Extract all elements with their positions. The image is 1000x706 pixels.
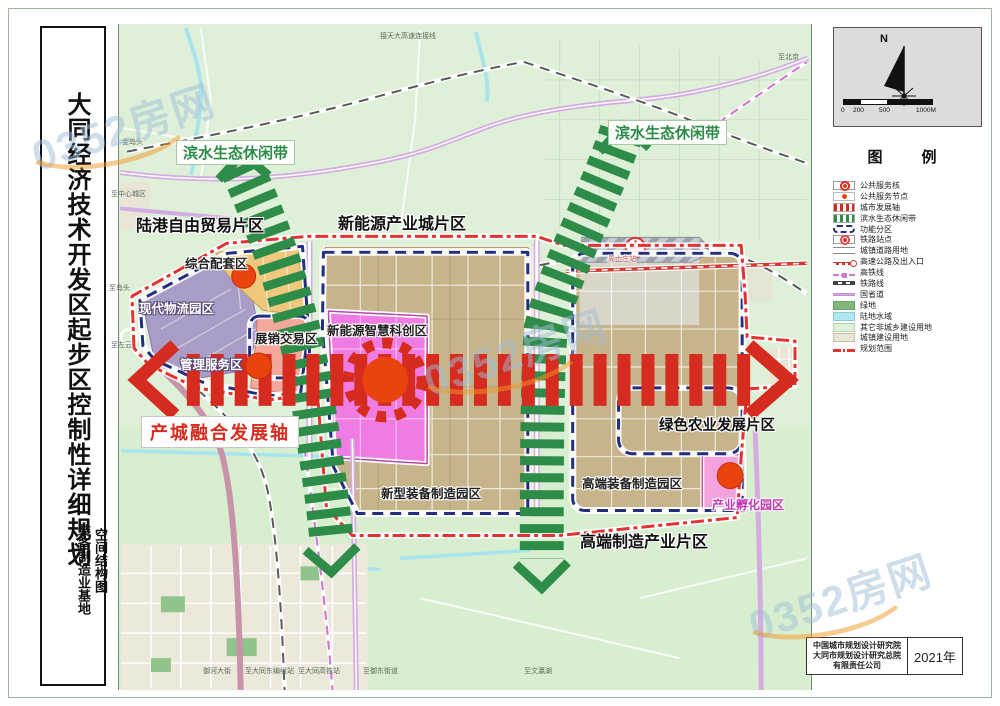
label-zone-expo: 展销交易区	[255, 328, 318, 347]
scale-bar	[843, 99, 933, 105]
label-minor-to-yudong: 至御东街道	[363, 666, 398, 676]
scale-tick-200: 200	[853, 107, 864, 114]
public-service-node-icon	[833, 192, 855, 201]
legend-item: 铁路线	[833, 278, 987, 289]
label-zone-logistics: 现代物流园区	[139, 298, 214, 317]
label-district-high-end-mfg: 高端制造产业片区	[580, 528, 708, 552]
legend-item: 城市发展轴	[833, 202, 987, 213]
urban-road-land-icon	[833, 247, 855, 254]
label-minor-to-wenying-lake: 至文瀛湖	[524, 666, 552, 676]
scale-tick-0: 0	[841, 107, 845, 114]
legend-item: 滨水生态休闲带	[833, 213, 987, 224]
water-area-icon	[833, 312, 855, 321]
label-minor-to-zuoyun: 至左云	[111, 340, 132, 350]
legend: 公共服务核 公共服务节点 城市发展轴 滨水生态休闲带 功能分区 铁路站点 城镇道…	[833, 180, 987, 354]
legend-item: 绿地	[833, 300, 987, 311]
north-label: N	[880, 33, 888, 45]
label-development-axis: 产城融合发展轴	[141, 416, 299, 448]
label-eco-belt-west: 滨水生态休闲带	[176, 140, 295, 165]
public-service-core	[362, 357, 408, 403]
expressway-icon	[833, 262, 855, 265]
label-district-free-trade: 陆港自由贸易片区	[136, 212, 264, 236]
label-minor-to-beijing: 至北京	[778, 52, 799, 62]
planning-boundary-icon	[833, 349, 855, 352]
plan-title: 大同经济技术开发区起步区控制性详细规划	[59, 92, 94, 567]
label-zone-high-equipment: 高端装备制造园区	[582, 473, 682, 492]
scale-tick-500: 500	[879, 107, 890, 114]
legend-item: 城镇建设用地	[833, 332, 987, 343]
national-road-icon	[833, 293, 855, 296]
legend-item: 规划范围	[833, 343, 987, 354]
legend-item: 国省道	[833, 289, 987, 300]
urban-land-icon	[833, 333, 855, 342]
scale-tick-1000: 1000M	[916, 107, 936, 114]
label-minor-expressway-link: 接天大高速连接线	[380, 31, 436, 41]
label-station-name: 周士庄站	[608, 254, 636, 264]
legend-item: 高铁线	[833, 267, 987, 278]
label-zone-admin: 管理服务区	[180, 354, 243, 373]
legend-item: 高速公路及出入口	[833, 256, 987, 267]
label-minor-yuhe-street: 御河大街	[203, 666, 231, 676]
label-minor-marshalling-yard: 至大同东编组站	[245, 666, 294, 676]
label-minor-to-hsr-station: 至大同高铁站	[298, 666, 340, 676]
public-service-core-icon	[833, 181, 855, 190]
green-space-icon	[833, 301, 855, 310]
label-eco-belt-east: 滨水生态休闲带	[608, 120, 727, 145]
title-sidebar: 大同经济技术开发区起步区控制性详细规划 装备制造业基地 空间结构图	[40, 26, 106, 686]
attribution-institutes: 中国城市规划设计研究院 大同市规划设计研究总院 有限责任公司	[807, 638, 908, 674]
legend-item: 铁路站点	[833, 234, 987, 245]
legend-item: 城镇道路用地	[833, 245, 987, 256]
label-minor-to-city-center: 至中心城区	[111, 189, 146, 199]
rail-station-icon	[833, 235, 855, 244]
attribution-year: 2021年	[908, 638, 962, 674]
label-zone-tech-innovation: 新能源智慧科创区	[327, 320, 427, 339]
attribution-box: 中国城市规划设计研究院 大同市规划设计研究总院 有限责任公司 2021年	[806, 637, 963, 675]
legend-item: 陆地水域	[833, 311, 987, 322]
label-zone-incubator: 产业孵化园区	[712, 496, 784, 513]
legend-item: 公共服务节点	[833, 191, 987, 202]
other-land-icon	[833, 323, 855, 332]
legend-title: 图 例	[832, 146, 984, 167]
label-minor-to-daotou: 至岛头	[109, 283, 130, 293]
plan-subtitle-maptype: 空间结构图	[91, 528, 110, 593]
label-zone-green-agriculture: 绿色农业发展片区	[659, 414, 775, 435]
hsr-line-icon	[833, 274, 855, 276]
label-zone-new-equipment: 新型装备制造园区	[381, 483, 481, 502]
functional-zone-icon	[833, 225, 855, 233]
label-zone-complex: 综合配套区	[185, 253, 248, 272]
railway-line-icon	[833, 281, 855, 285]
city-axis-icon	[833, 203, 855, 212]
legend-item: 其它非城乡建设用地	[833, 322, 987, 333]
label-district-new-energy: 新能源产业城片区	[338, 210, 466, 234]
legend-item: 公共服务核	[833, 180, 987, 191]
label-minor-jindaotou: 金岛头	[122, 137, 143, 147]
legend-item: 功能分区	[833, 224, 987, 235]
eco-belt-icon	[833, 214, 855, 223]
plan-sheet: 大同经济技术开发区起步区控制性详细规划 装备制造业基地 空间结构图	[0, 0, 1000, 706]
